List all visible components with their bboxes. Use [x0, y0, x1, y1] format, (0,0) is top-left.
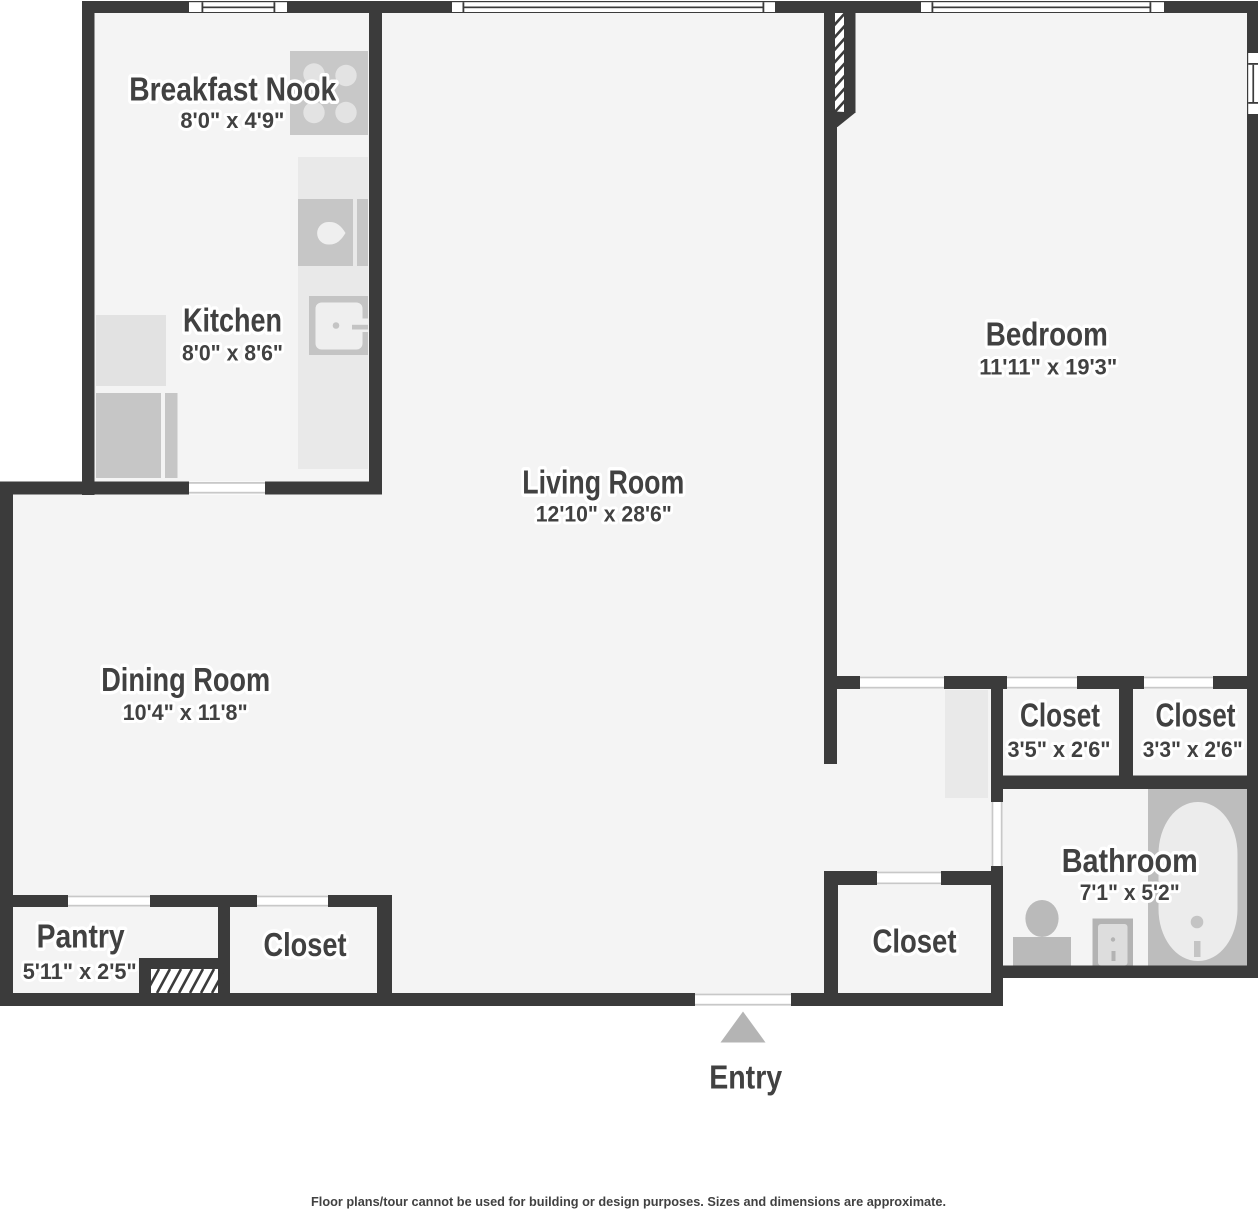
svg-text:12'10" x 28'6": 12'10" x 28'6": [536, 502, 672, 527]
svg-text:8'0" x 8'6": 8'0" x 8'6": [182, 341, 283, 366]
svg-text:Breakfast Nook: Breakfast Nook: [129, 71, 337, 108]
svg-text:3'5" x 2'6": 3'5" x 2'6": [1008, 737, 1111, 762]
svg-text:3'3" x 2'6": 3'3" x 2'6": [1143, 737, 1243, 762]
svg-text:Pantry: Pantry: [37, 917, 126, 954]
svg-text:Kitchen: Kitchen: [183, 302, 282, 339]
svg-text:8'0" x 4'9": 8'0" x 4'9": [180, 108, 284, 133]
svg-text:Dining Room: Dining Room: [101, 661, 270, 698]
svg-text:11'11" x 19'3": 11'11" x 19'3": [979, 354, 1117, 379]
svg-text:Living Room: Living Room: [522, 464, 684, 501]
svg-text:5'11" x 2'5": 5'11" x 2'5": [23, 959, 137, 984]
svg-text:Floor plans/tour cannot be use: Floor plans/tour cannot be used for buil…: [311, 1195, 946, 1209]
svg-text:Closet: Closet: [1156, 697, 1236, 734]
svg-text:7'1" x 5'2": 7'1" x 5'2": [1080, 880, 1180, 905]
svg-text:Closet: Closet: [1020, 697, 1100, 734]
svg-text:Bedroom: Bedroom: [986, 316, 1108, 353]
svg-text:Closet: Closet: [873, 922, 957, 959]
svg-text:Entry: Entry: [709, 1059, 783, 1096]
svg-text:Bathroom: Bathroom: [1062, 842, 1198, 879]
svg-text:Closet: Closet: [264, 926, 347, 963]
svg-text:10'4" x 11'8": 10'4" x 11'8": [123, 700, 248, 725]
